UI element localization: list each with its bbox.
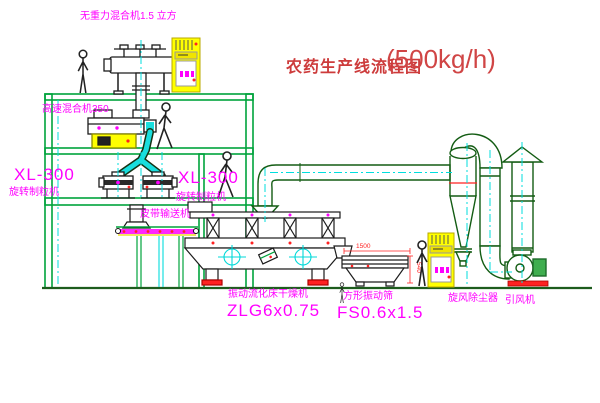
square-sieve bbox=[342, 256, 408, 286]
label-granulator-right-model: XL-300 bbox=[178, 169, 239, 186]
label-high-speed-mixer: 高速混合机350 bbox=[42, 105, 109, 115]
label-granulator-left-name: 旋转制粒机 bbox=[9, 188, 59, 198]
label-gravity-mixer: 无重力混合机1.5 立方 bbox=[80, 12, 177, 22]
granulator-right bbox=[141, 172, 177, 198]
fluid-bed-dryer bbox=[185, 202, 352, 285]
granulator-left bbox=[99, 172, 135, 198]
label-dryer-model: ZLG6x0.75 bbox=[227, 302, 320, 319]
exhaust-duct bbox=[252, 163, 450, 218]
label-dryer-name: 振动流化床干燥机 bbox=[228, 290, 308, 300]
cad-canvas: 1500 540 bbox=[0, 0, 600, 403]
control-cabinet-cyclone bbox=[428, 233, 454, 287]
label-granulator-left-model: XL-300 bbox=[14, 166, 75, 183]
label-sieve-name: 方形振动筛 bbox=[343, 292, 393, 302]
label-sieve-model: FS0.6x1.5 bbox=[337, 304, 424, 321]
drawing-capacity: (500kg/h) bbox=[386, 44, 496, 75]
person-second-floor-figure bbox=[157, 103, 172, 149]
belt-conveyor bbox=[116, 227, 199, 287]
sieve-length-dim: 1500 bbox=[356, 243, 371, 250]
person-top-floor-figure bbox=[78, 50, 88, 93]
label-fan: 引风机 bbox=[505, 296, 535, 306]
induced-draft-fan bbox=[505, 250, 548, 286]
label-belt-conveyor: 皮带输送机 bbox=[140, 210, 190, 220]
label-cyclone: 旋风除尘器 bbox=[448, 294, 498, 304]
control-cabinet-top bbox=[172, 38, 200, 92]
label-granulator-right-name: 旋转制粒机 bbox=[176, 193, 226, 203]
